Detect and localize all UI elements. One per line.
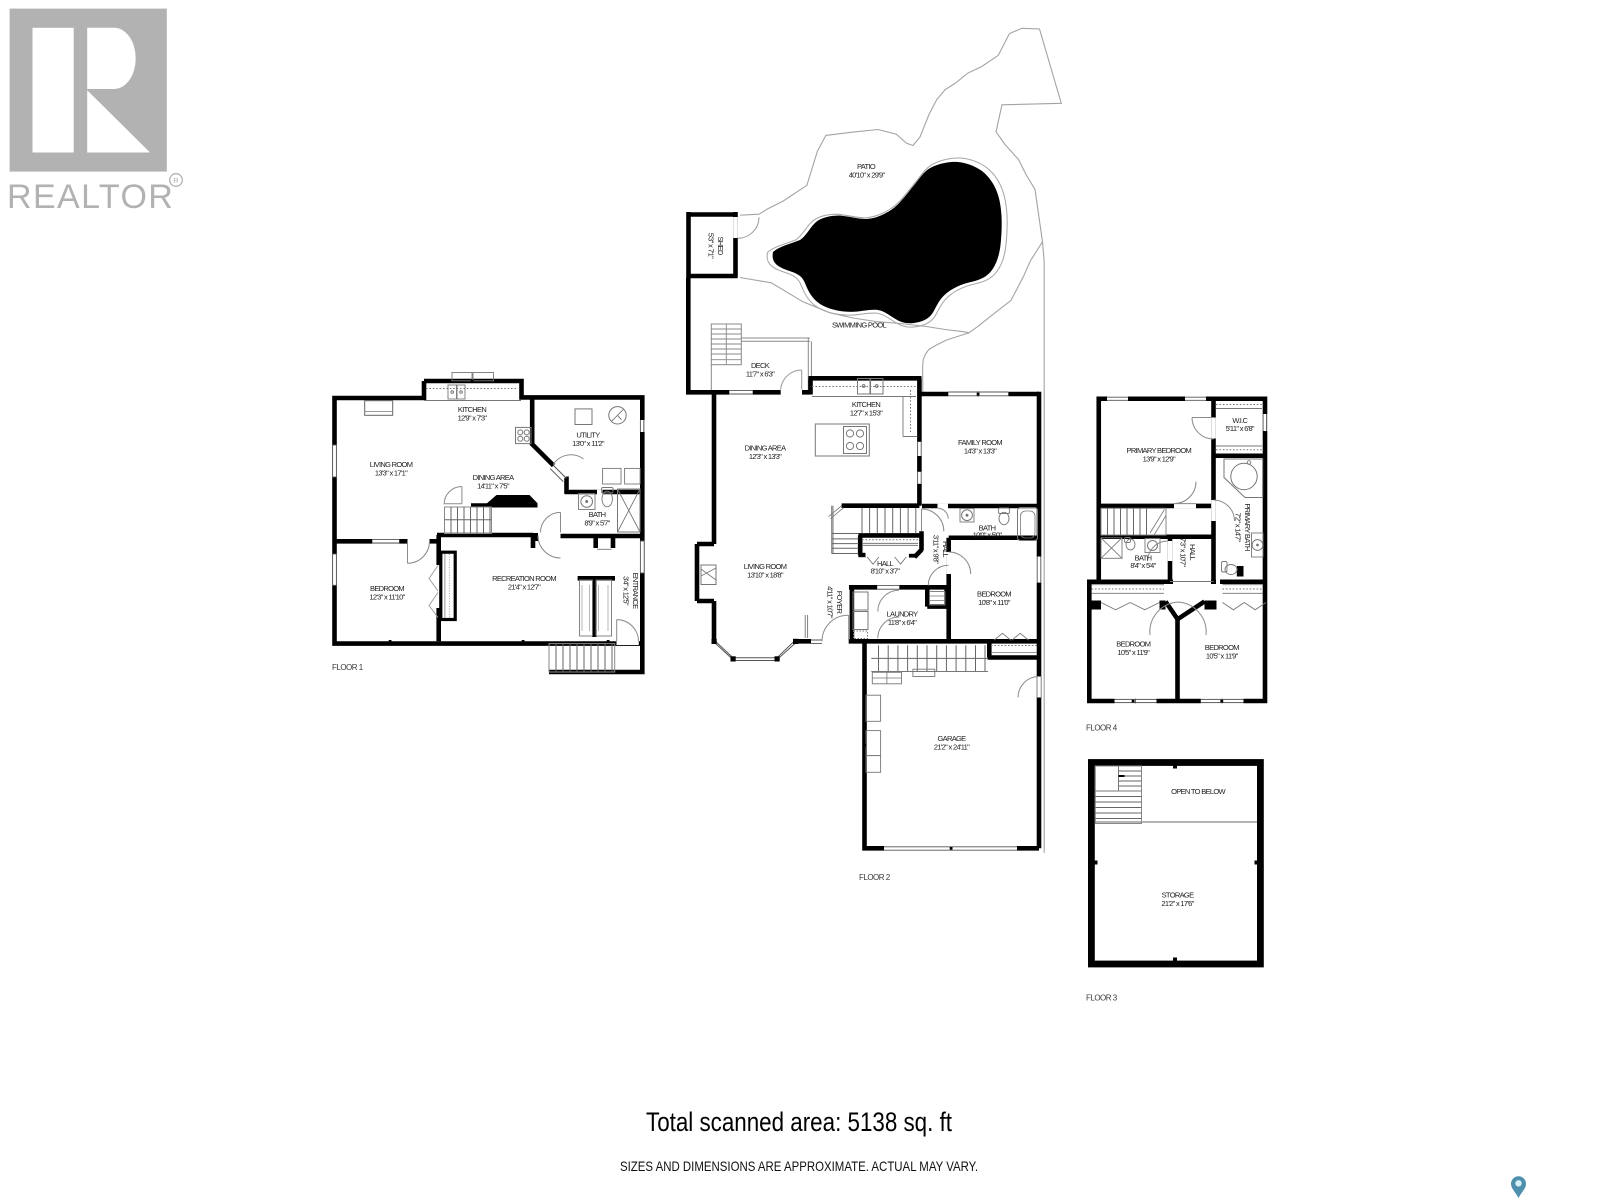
svg-text:FLOOR 4: FLOOR 4 — [1086, 724, 1118, 733]
svg-text:OPEN TO BELOW: OPEN TO BELOW — [1171, 787, 1226, 796]
svg-text:12'7" x 15'3": 12'7" x 15'3" — [850, 409, 883, 418]
svg-text:13'9" x 12'9": 13'9" x 12'9" — [1143, 455, 1176, 464]
svg-text:FLOOR 2: FLOOR 2 — [859, 873, 891, 882]
svg-text:21'4" x 12'7": 21'4" x 12'7" — [508, 583, 541, 592]
svg-text:4'11" x 10'7": 4'11" x 10'7" — [825, 586, 834, 619]
svg-text:10'5" x 11'9": 10'5" x 11'9" — [1206, 652, 1239, 661]
svg-text:21'2" x 24'11": 21'2" x 24'11" — [934, 743, 970, 752]
svg-text:13'3" x 17'1": 13'3" x 17'1" — [375, 469, 408, 478]
svg-text:8'4" x 5'4": 8'4" x 5'4" — [1130, 561, 1156, 570]
svg-text:7'2" x 14'7": 7'2" x 14'7" — [1233, 513, 1242, 543]
svg-text:PRIMARY BATH: PRIMARY BATH — [1243, 503, 1252, 551]
svg-text:REALTOR: REALTOR — [7, 178, 174, 216]
svg-text:7'3" x 10'7": 7'3" x 10'7" — [1178, 538, 1187, 568]
svg-text:HALL: HALL — [941, 541, 950, 558]
svg-text:Total scanned area: 5138 sq. f: Total scanned area: 5138 sq. ft — [646, 1107, 952, 1137]
svg-text:12'3" x 11'10": 12'3" x 11'10" — [369, 593, 405, 602]
svg-text:ENTRANCE: ENTRANCE — [631, 573, 640, 609]
svg-text:FLOOR 1: FLOOR 1 — [332, 663, 364, 672]
svg-text:14'3" x 13'3": 14'3" x 13'3" — [964, 447, 997, 456]
svg-text:12'3" x 13'3": 12'3" x 13'3" — [749, 452, 782, 461]
svg-text:SHED: SHED — [716, 236, 725, 255]
svg-text:SWIMMING POOL: SWIMMING POOL — [832, 321, 887, 330]
svg-text:14'11" x 7'5": 14'11" x 7'5" — [477, 482, 510, 491]
svg-text:5'3" x 7'1": 5'3" x 7'1" — [706, 233, 715, 259]
svg-text:12'9" x 7'3": 12'9" x 7'3" — [458, 414, 488, 423]
svg-text:13'0" x 11'2": 13'0" x 11'2" — [572, 439, 605, 448]
svg-text:8'9" x 5'7": 8'9" x 5'7" — [584, 519, 610, 528]
svg-text:10'8" x 11'0": 10'8" x 11'0" — [978, 598, 1011, 607]
svg-text:FOYER: FOYER — [835, 591, 844, 615]
svg-text:3'4" x 12'5": 3'4" x 12'5" — [621, 576, 630, 606]
svg-text:R: R — [173, 176, 179, 185]
svg-text:11'7" x 6'3": 11'7" x 6'3" — [746, 370, 775, 379]
svg-text:40'10" x 29'9": 40'10" x 29'9" — [849, 171, 886, 180]
svg-text:SIZES AND DIMENSIONS ARE APPRO: SIZES AND DIMENSIONS ARE APPROXIMATE. AC… — [620, 1159, 978, 1174]
svg-text:HALL: HALL — [1188, 544, 1197, 561]
svg-text:8'10" x 3'7": 8'10" x 3'7" — [871, 567, 901, 576]
svg-text:13'10" x 18'8": 13'10" x 18'8" — [747, 571, 784, 580]
svg-text:FLOOR 3: FLOOR 3 — [1086, 994, 1118, 1003]
svg-text:11'8" x 6'4": 11'8" x 6'4" — [888, 618, 917, 627]
svg-text:10'0" x 5'0": 10'0" x 5'0" — [973, 530, 1003, 539]
svg-text:10'5" x 11'9": 10'5" x 11'9" — [1117, 648, 1150, 657]
svg-text:21'2" x 17'6": 21'2" x 17'6" — [1161, 899, 1194, 908]
svg-text:5'11" x 6'8": 5'11" x 6'8" — [1226, 424, 1255, 433]
svg-text:3'11" x 9'8": 3'11" x 9'8" — [931, 535, 940, 564]
